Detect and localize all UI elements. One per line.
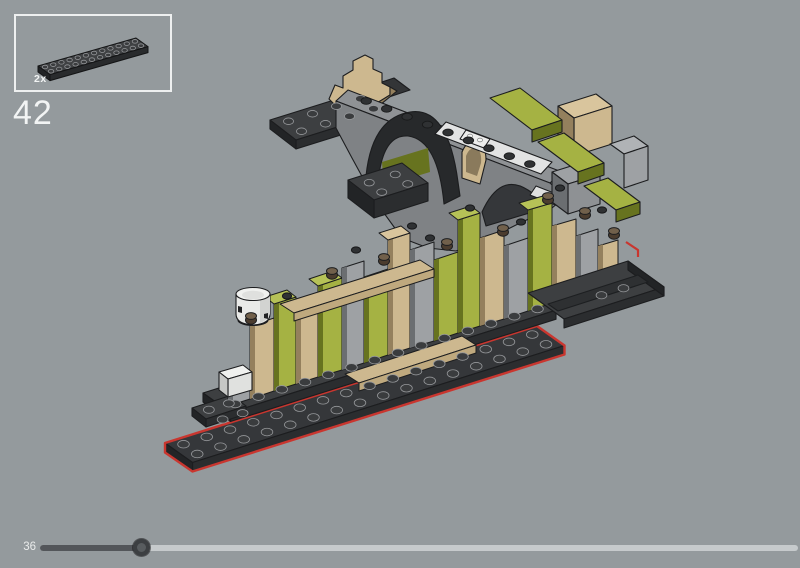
- second-new-piece-hint: [626, 242, 638, 257]
- progress-slider-fill: [40, 545, 142, 551]
- instructions-viewer: 2x 42: [0, 0, 800, 568]
- progress-slider-thumb[interactable]: [133, 539, 150, 556]
- progress-value-label: 36: [12, 541, 36, 553]
- model-render[interactable]: [0, 0, 800, 568]
- progress-slider-track[interactable]: [40, 545, 798, 551]
